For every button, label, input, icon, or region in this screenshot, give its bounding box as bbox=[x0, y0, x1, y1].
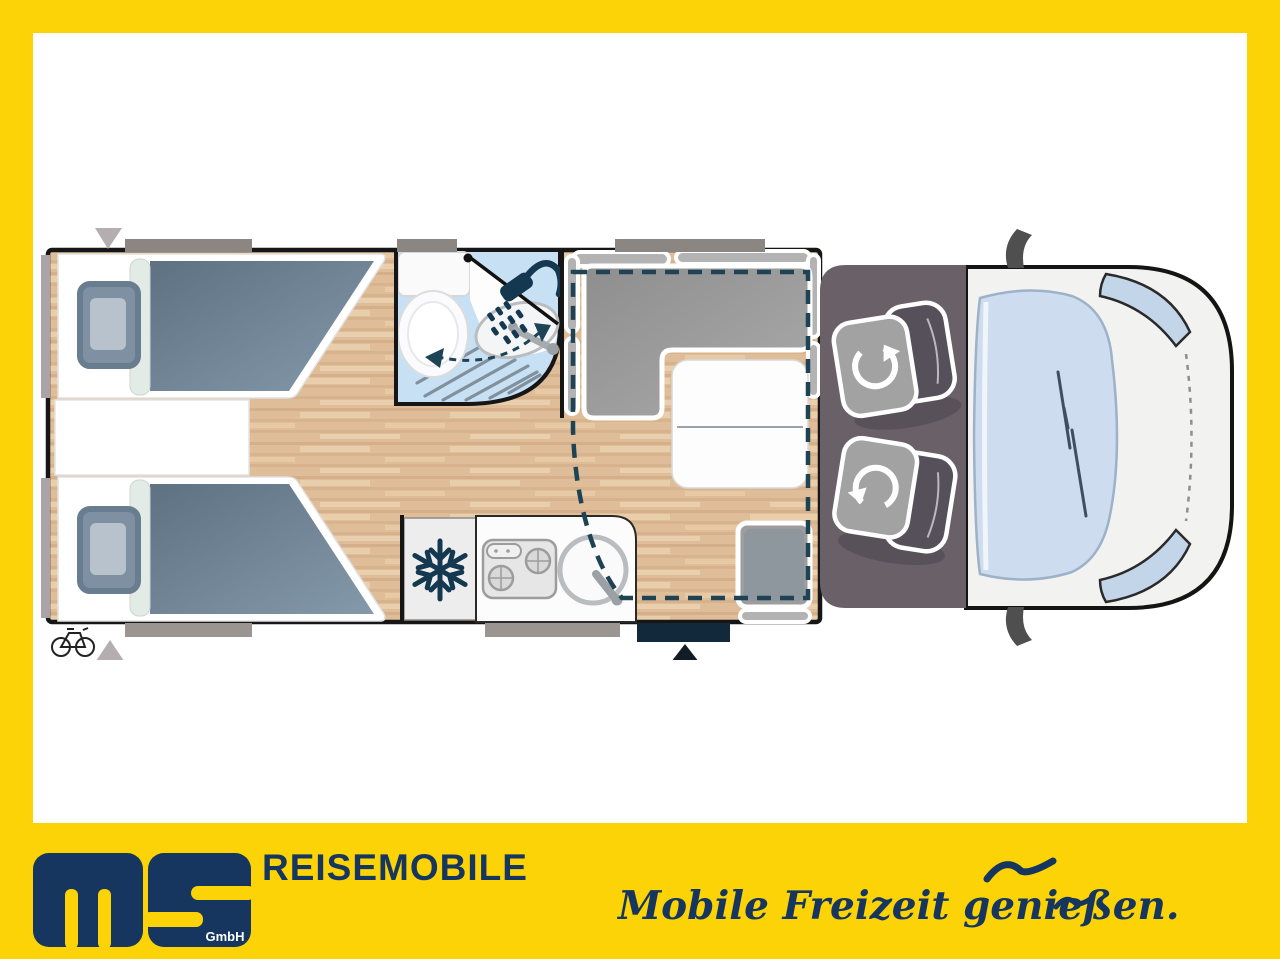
rear-wall-marker bbox=[41, 478, 50, 618]
pillow-icon bbox=[80, 284, 138, 366]
seagull-icon bbox=[1053, 891, 1095, 913]
bike-rack-icon bbox=[52, 628, 94, 656]
cab-interior bbox=[820, 265, 966, 608]
window-marker bbox=[485, 623, 620, 637]
ms-gmbh-logo: GmbH bbox=[33, 853, 251, 949]
window-marker bbox=[125, 239, 252, 252]
bathroom bbox=[396, 252, 565, 404]
logo-suffix: GmbH bbox=[206, 929, 245, 944]
entry-arrow-icon bbox=[671, 644, 699, 660]
brand-slogan: Mobile Freizeit genießen. bbox=[618, 883, 1179, 929]
rear-wall-marker bbox=[41, 255, 50, 398]
floorplan-svg bbox=[40, 225, 1245, 660]
photo-canvas bbox=[33, 33, 1247, 823]
window-marker bbox=[397, 239, 457, 252]
dinette-table bbox=[672, 360, 808, 488]
rear-marker-arrow-icon bbox=[96, 640, 124, 660]
cab-front bbox=[966, 229, 1232, 646]
window-marker bbox=[615, 239, 765, 252]
stove-icon bbox=[483, 540, 556, 598]
pillow-icon bbox=[80, 509, 138, 591]
mirror-icon bbox=[1006, 607, 1032, 646]
brand-wordmark: REISEMOBILE bbox=[262, 847, 528, 889]
swivel-wall-pivot bbox=[464, 254, 473, 263]
window-marker bbox=[125, 623, 252, 637]
seagull-icon bbox=[983, 851, 1057, 887]
bedside-cabinet bbox=[55, 400, 249, 475]
listing-image: { "brand": { "logo_text": "ms", "logo_su… bbox=[0, 0, 1280, 959]
side-seat bbox=[738, 523, 810, 607]
mirror-icon bbox=[1006, 229, 1032, 268]
rear-marker-arrow-icon bbox=[95, 228, 122, 249]
dealer-footer: GmbH REISEMOBILE Mobile Freizeit genieße… bbox=[0, 823, 1280, 959]
floorplan bbox=[40, 225, 1245, 660]
entry-door bbox=[637, 623, 730, 642]
windshield bbox=[974, 290, 1117, 579]
